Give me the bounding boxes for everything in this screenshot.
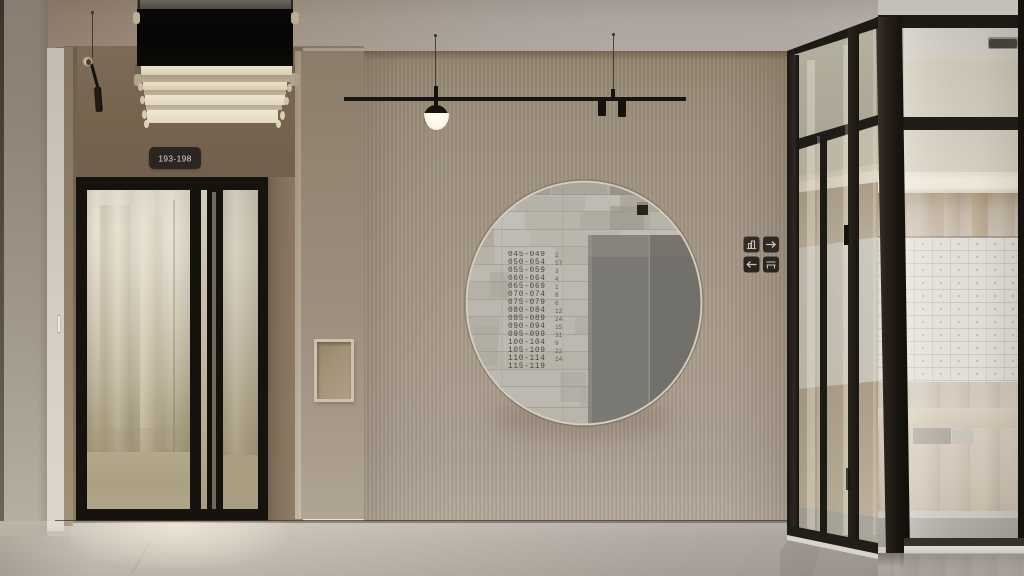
svg-text:105-109: 105-109 <box>508 347 546 355</box>
svg-text:100-104: 100-104 <box>508 339 546 347</box>
svg-text:095-099: 095-099 <box>508 331 546 339</box>
svg-text:090-094: 090-094 <box>508 323 546 331</box>
svg-text:065-069: 065-069 <box>508 283 546 291</box>
svg-text:193-198: 193-198 <box>158 154 191 164</box>
svg-text:110-114: 110-114 <box>508 355 546 363</box>
svg-text:045-049: 045-049 <box>508 251 546 259</box>
svg-text:4: 4 <box>555 276 559 283</box>
svg-text:080-084: 080-084 <box>508 307 546 315</box>
svg-text:3: 3 <box>555 268 559 275</box>
svg-text:17: 17 <box>555 260 563 267</box>
svg-text:115-119: 115-119 <box>508 363 546 371</box>
svg-text:050-054: 050-054 <box>508 259 546 267</box>
svg-text:14: 14 <box>555 356 563 363</box>
svg-text:15: 15 <box>555 324 563 331</box>
svg-text:060-064: 060-064 <box>508 275 546 283</box>
svg-text:2: 2 <box>555 252 559 259</box>
svg-text:31: 31 <box>555 332 563 339</box>
svg-text:22: 22 <box>555 348 563 355</box>
svg-text:1: 1 <box>555 284 559 291</box>
svg-text:12: 12 <box>555 308 563 315</box>
svg-text:24: 24 <box>555 316 563 323</box>
svg-text:055-059: 055-059 <box>508 267 546 275</box>
svg-text:075-079: 075-079 <box>508 299 546 307</box>
svg-text:8: 8 <box>555 292 559 299</box>
svg-text:6: 6 <box>555 300 559 307</box>
svg-text:070-074: 070-074 <box>508 291 546 299</box>
svg-text:9: 9 <box>555 340 559 347</box>
svg-text:085-089: 085-089 <box>508 315 546 323</box>
